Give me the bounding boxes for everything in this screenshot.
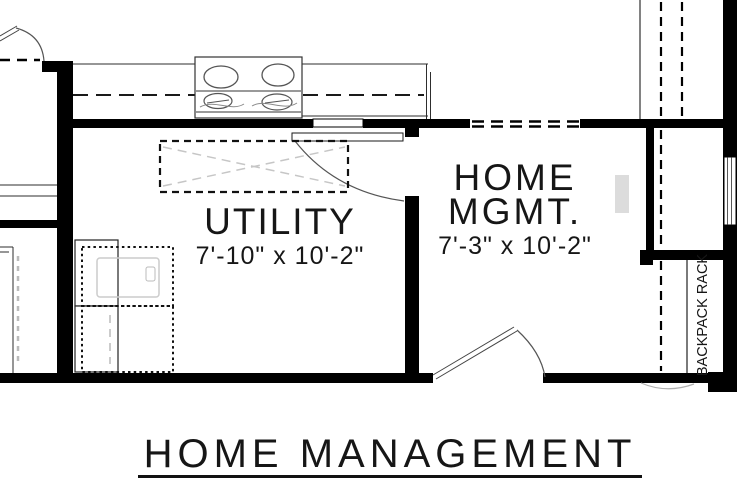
cased-opening-dashes	[472, 122, 580, 127]
wall-left	[57, 61, 73, 383]
right-wall-window	[724, 157, 736, 225]
room-dimensions-utility: 7'-10" x 10'-2"	[155, 239, 405, 273]
top-left-door	[0, 26, 44, 61]
cooktop	[195, 57, 302, 118]
left-edge-details	[0, 185, 57, 373]
home-mgmt-door	[433, 327, 545, 379]
wall-middle-stub	[405, 125, 419, 137]
utility-door	[292, 133, 404, 201]
room-label-home-mgmt: HOME MGMT. 7'-3" x 10'-2"	[415, 161, 615, 263]
wall-top-a	[73, 119, 313, 128]
door-leaf	[292, 133, 403, 141]
stair-enclosure	[640, 0, 682, 119]
door-swing-arc	[517, 330, 545, 377]
wall-bottom-left	[0, 373, 433, 383]
room-name-home-mgmt-line1: HOME	[415, 161, 615, 195]
wall-closet-bottom	[640, 250, 737, 260]
pocket-door-panel	[313, 119, 363, 127]
wall-top-c	[580, 119, 737, 128]
backpack-rack-label: BACKPACK RACK	[692, 235, 714, 395]
plan-title-text: HOME MANAGEMENT	[138, 436, 643, 478]
wall-closet-bottom-step	[640, 250, 653, 265]
floor-plan: UTILITY 7'-10" x 10'-2" HOME MGMT. 7'-3"…	[0, 0, 740, 480]
door-swing-arc	[16, 28, 44, 61]
room-dimensions-home-mgmt: 7'-3" x 10'-2"	[415, 229, 615, 263]
door-swing-arc	[295, 141, 404, 201]
wall-closet-divider	[646, 128, 654, 258]
room-name-utility: UTILITY	[155, 205, 405, 239]
room-label-utility: UTILITY 7'-10" x 10'-2"	[155, 205, 405, 273]
room-name-home-mgmt-line2: MGMT.	[415, 195, 615, 229]
washer-control	[146, 267, 155, 281]
plan-title: HOME MANAGEMENT	[90, 436, 690, 478]
recessed-panel	[615, 175, 629, 213]
wall-left-stub-lower	[0, 220, 57, 228]
faint-door-arc	[641, 383, 694, 389]
